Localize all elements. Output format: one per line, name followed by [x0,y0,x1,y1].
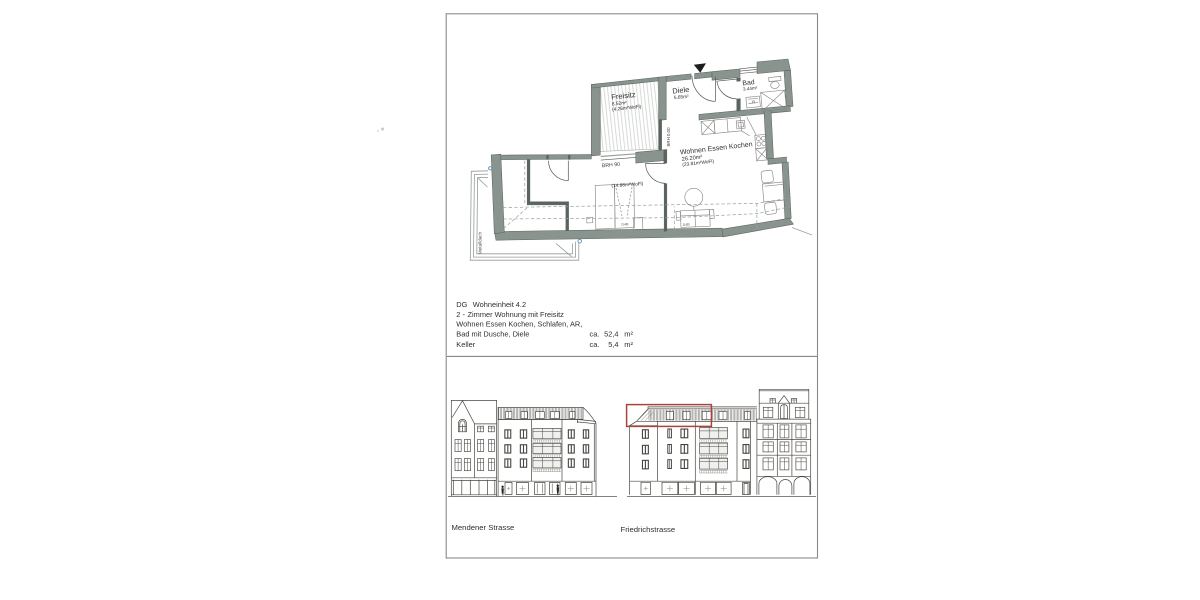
svg-text:m²: m² [624,340,633,349]
svg-text:ca.: ca. [590,330,600,339]
svg-text:2 -: 2 - [456,310,465,319]
svg-text:Bad mit Dusche, Diele: Bad mit Dusche, Diele [456,330,529,339]
svg-text:Metalldach: Metalldach [478,231,483,254]
svg-text:m²: m² [624,330,633,339]
svg-text:Wohneinheit 4.2: Wohneinheit 4.2 [473,300,526,309]
svg-text:5,4: 5,4 [608,340,618,349]
svg-text:Keller: Keller [456,340,475,349]
svg-text:52,4: 52,4 [604,330,618,339]
svg-text:ca.: ca. [590,340,600,349]
svg-text:Zimmer Wohnung mit Freisitz: Zimmer Wohnung mit Freisitz [468,310,565,319]
svg-text:Wohnen Essen Kochen, Schlafen,: Wohnen Essen Kochen, Schlafen, AR, [456,320,582,329]
svg-text:D4B: D4B [621,222,629,227]
svg-text:DG: DG [456,300,467,309]
svg-text:BRH 0.00: BRH 0.00 [666,127,671,147]
svg-text:D4B: D4B [683,222,691,227]
svg-text:Friedrichstrasse: Friedrichstrasse [621,525,676,534]
svg-text:Mendener Strasse: Mendener Strasse [452,523,515,532]
